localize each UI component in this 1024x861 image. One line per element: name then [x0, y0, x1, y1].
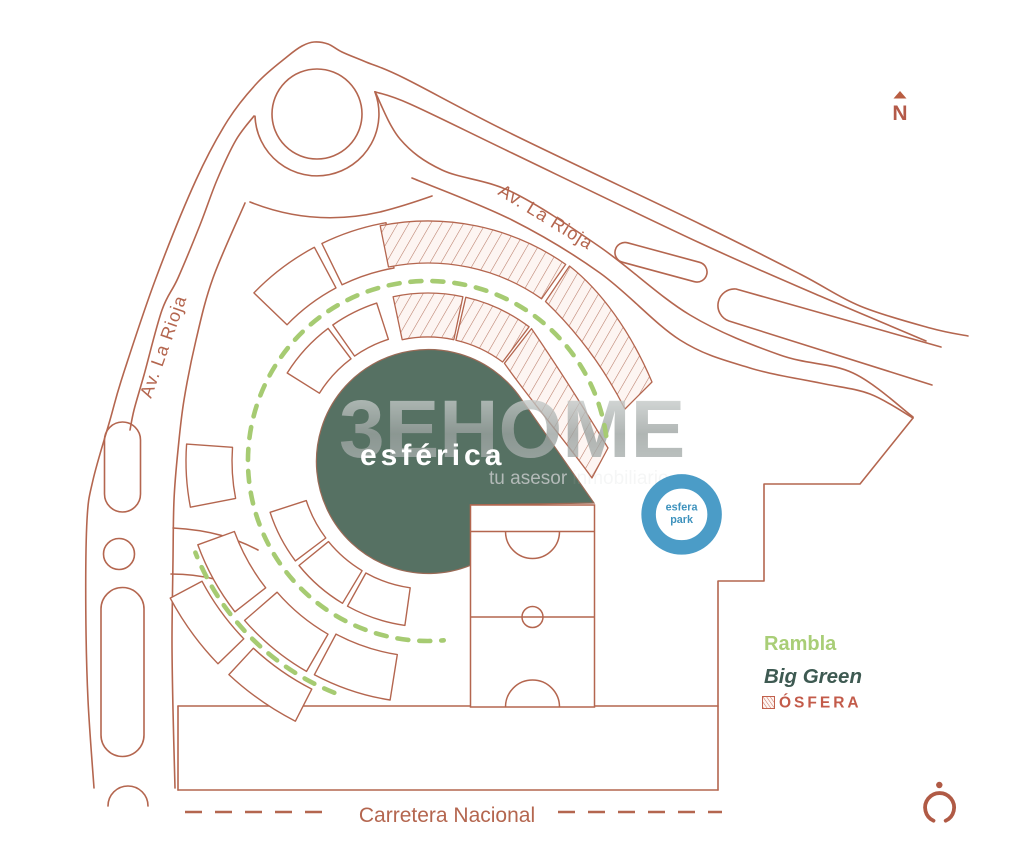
svg-text:esférica: esférica — [360, 439, 505, 472]
svg-text:park: park — [670, 514, 694, 526]
svg-text:Rambla: Rambla — [764, 633, 837, 655]
svg-text:Carretera Nacional: Carretera Nacional — [359, 804, 535, 827]
svg-text:ÓSFERA: ÓSFERA — [779, 694, 862, 712]
svg-text:tu asesor inmobiliario: tu asesor inmobiliario — [489, 468, 669, 489]
svg-text:esfera: esfera — [666, 502, 699, 514]
svg-text:Big Green: Big Green — [764, 665, 862, 688]
svg-text:N: N — [892, 102, 907, 125]
